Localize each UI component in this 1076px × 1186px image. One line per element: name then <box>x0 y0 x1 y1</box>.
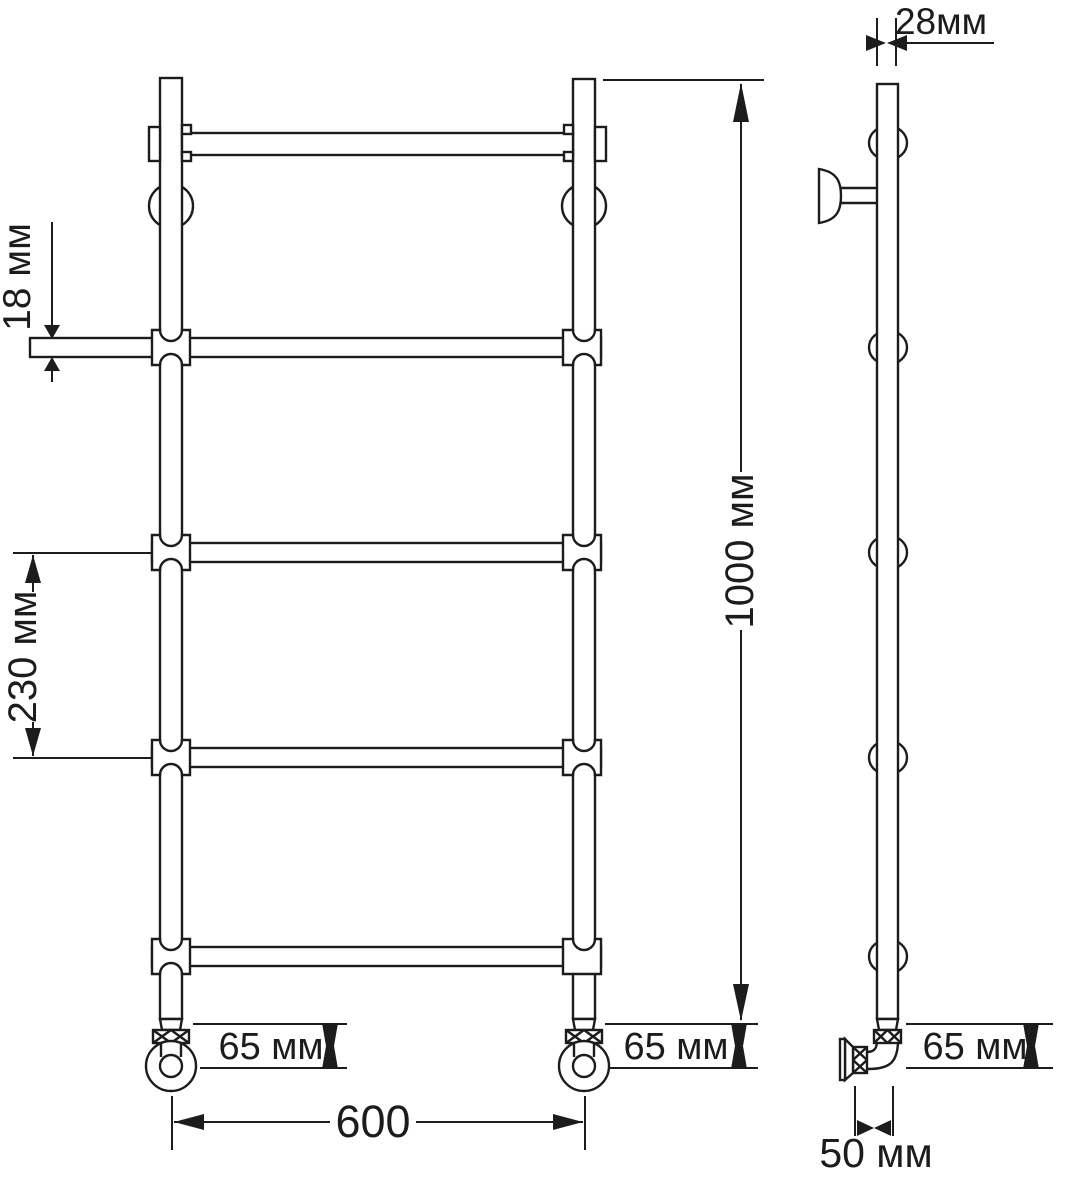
wall-union-nut <box>853 1047 867 1073</box>
foot-volute-inner <box>573 1055 595 1077</box>
rung-1-tab <box>564 152 573 161</box>
side-tube <box>877 84 898 1019</box>
wall-flange-plate <box>840 1039 845 1080</box>
foot-collar <box>160 1019 182 1030</box>
wall-plate-right <box>595 127 606 161</box>
wall-plate-left <box>149 127 160 161</box>
towel-rail-dimension-drawing: 28мм 18 мм 230 мм 1000 мм <box>0 0 1076 1186</box>
rung-2 <box>30 338 601 357</box>
dimension-label-rung-spacing: 230 мм <box>1 591 45 724</box>
scroll-foot-left <box>146 1019 196 1091</box>
elbow-collar <box>877 1019 898 1030</box>
dimension-label-foot-front-right: 65 мм <box>623 1026 728 1068</box>
wall-flange-cone <box>845 1039 853 1080</box>
rung-5 <box>152 947 601 966</box>
rung-1-tab <box>182 152 191 161</box>
rung-1 <box>182 133 573 155</box>
dimension-label-overall-height: 1000 мм <box>718 473 762 628</box>
dimension-label-side-tube-diameter: 28мм <box>895 1 987 42</box>
dimension-foot-height-side: 65 мм <box>906 1023 1053 1069</box>
rung-4 <box>152 748 601 767</box>
scroll-foot-right <box>559 1019 609 1091</box>
foot-collar <box>573 1019 595 1030</box>
dimension-label-foot-front-left: 65 мм <box>218 1026 323 1068</box>
dimension-label-rung-diameter: 18 мм <box>0 223 39 331</box>
elbow-nut <box>874 1030 901 1043</box>
rung-3 <box>152 543 601 562</box>
foot-volute-inner <box>160 1055 182 1077</box>
technical-drawing-canvas: 28мм 18 мм 230 мм 1000 мм <box>0 0 1076 1186</box>
rung-1-tab <box>564 125 573 134</box>
rung-1-tab <box>182 125 191 134</box>
dimension-label-wall-offset: 50 мм <box>819 1130 932 1176</box>
dimension-label-overall-width: 600 <box>335 1096 410 1147</box>
dimension-label-foot-side: 65 мм <box>922 1026 1027 1068</box>
dimension-foot-height-front-right: 65 мм <box>605 1023 758 1069</box>
